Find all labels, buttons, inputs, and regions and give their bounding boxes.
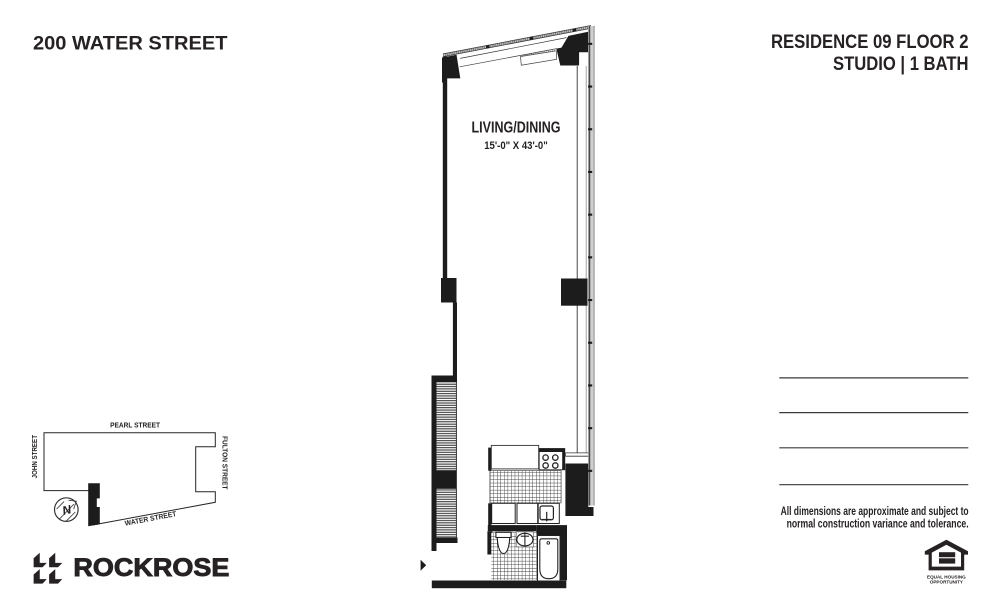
svg-text:RESIDENCE 09 FLOOR 2: RESIDENCE 09 FLOOR 2 [771, 31, 969, 53]
svg-text:FULTON STREET: FULTON STREET [221, 436, 230, 490]
svg-text:JOHN STREET: JOHN STREET [30, 434, 39, 478]
svg-text:normal construction variance a: normal construction variance and toleran… [787, 517, 969, 530]
svg-text:15'-0" X 43'-0": 15'-0" X 43'-0" [484, 140, 548, 152]
svg-text:OPPORTUNITY: OPPORTUNITY [930, 580, 963, 585]
svg-text:STUDIO | 1 BATH: STUDIO | 1 BATH [833, 53, 969, 75]
svg-text:LIVING/DINING: LIVING/DINING [472, 120, 561, 137]
svg-text:All dimensions are approximate: All dimensions are approximate and subje… [781, 505, 969, 518]
svg-text:PEARL STREET: PEARL STREET [110, 420, 161, 429]
svg-text:ROCKROSE: ROCKROSE [73, 554, 229, 582]
svg-text:200 WATER STREET: 200 WATER STREET [33, 32, 228, 54]
